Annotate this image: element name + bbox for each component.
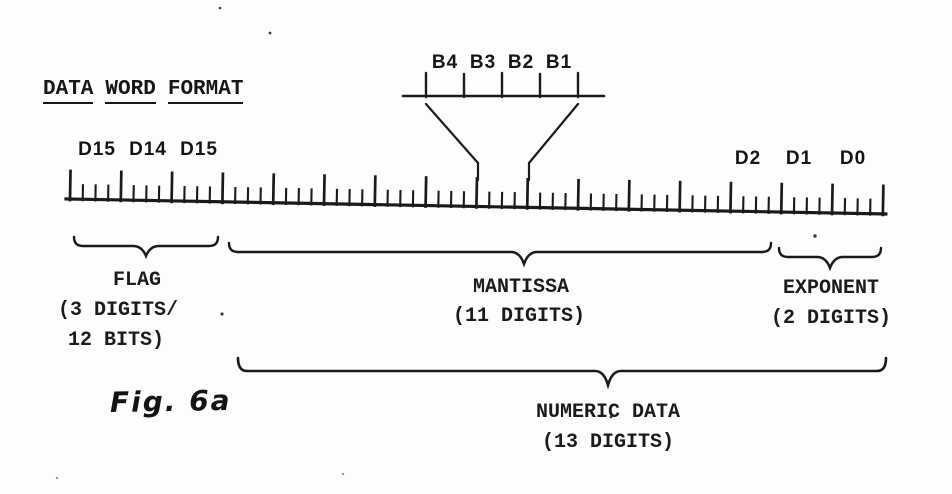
section-detail-exponent: (2 DIGITS) (771, 308, 891, 330)
bit-label-b1: B1 (546, 53, 572, 72)
title-word-word: WORD (105, 78, 155, 104)
digit-label-d2: D2 (735, 149, 761, 168)
bit-scale-lines (403, 73, 604, 97)
section-label-mantissa: MANTISSA (473, 277, 569, 299)
funnel-connector-lines (426, 104, 578, 180)
figure-line-art (0, 0, 952, 494)
patent-figure-page: DATAWORDFORMAT B4 B3 B2 B1 D15 D14 D15 D… (0, 0, 952, 494)
section-detail-mantissa: (11 DIGITS) (453, 306, 585, 328)
bit-ruler (66, 171, 886, 215)
bit-label-b2: B2 (508, 53, 534, 72)
bit-label-b4: B4 (432, 53, 458, 72)
section-label-exponent: EXPONENT (783, 278, 879, 300)
section-label-flag: FLAG (113, 270, 161, 292)
section-detail-numeric-data: (13 DIGITS) (542, 432, 674, 454)
title-word-data: DATA (43, 78, 93, 104)
digit-label-d13: D15 (180, 140, 218, 159)
digit-label-d1: D1 (786, 149, 812, 168)
section-detail-flag-bits: 12 BITS) (68, 330, 164, 352)
digit-label-d14: D14 (129, 140, 167, 159)
section-label-numeric-data: NUMERIC DATA (536, 402, 680, 424)
digit-label-d0: D0 (840, 149, 866, 168)
bit-label-b3: B3 (470, 53, 496, 72)
figure-heading: DATAWORDFORMAT (43, 78, 243, 101)
section-detail-flag-digits: (3 DIGITS/ (58, 300, 178, 322)
digit-label-d15: D15 (78, 140, 116, 159)
title-word-format: FORMAT (168, 78, 244, 104)
figure-number-label: Fig. 6a (110, 384, 232, 419)
